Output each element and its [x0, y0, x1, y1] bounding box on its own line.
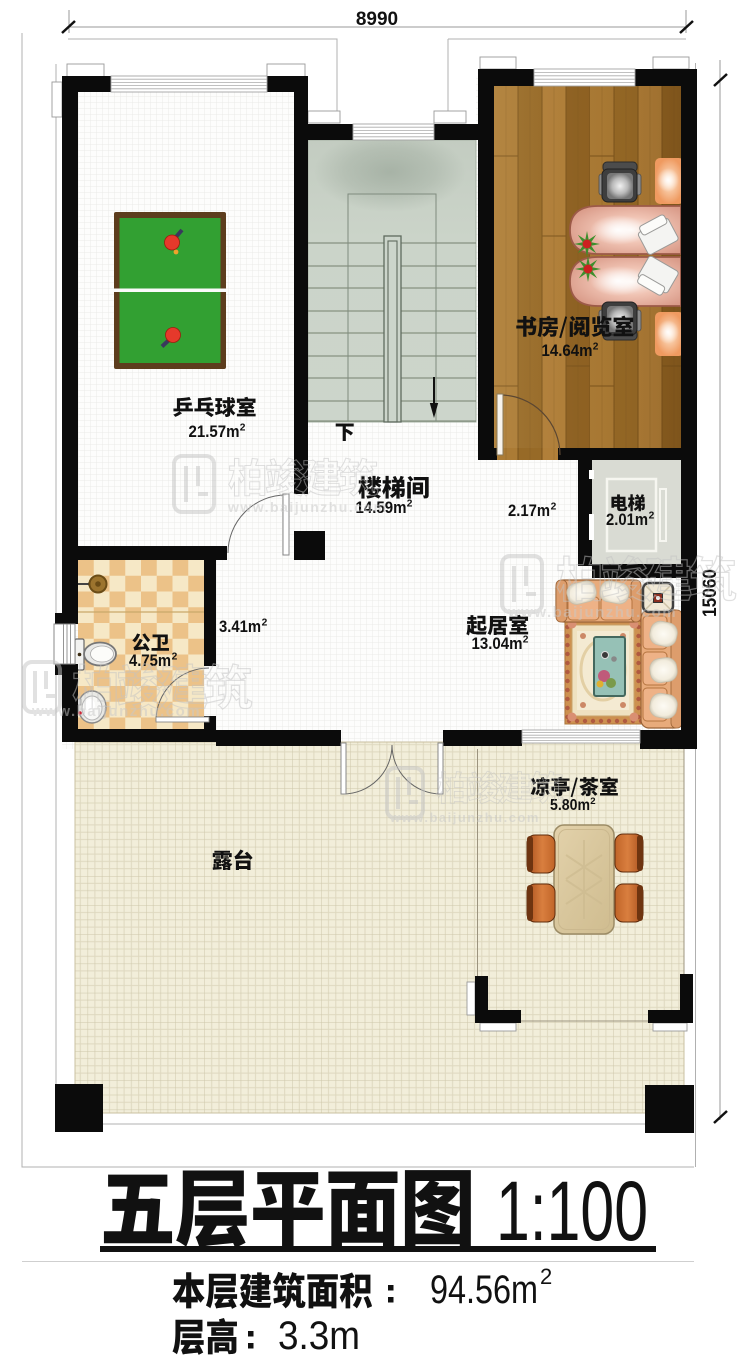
svg-text:94.56m: 94.56m [430, 1268, 538, 1312]
svg-text:2.01m: 2.01m [606, 511, 648, 529]
svg-text:3.3m: 3.3m [278, 1314, 360, 1358]
svg-text:3.41m: 3.41m [219, 618, 261, 636]
svg-text:14.64m: 14.64m [542, 342, 593, 360]
svg-text:2: 2 [551, 502, 557, 513]
svg-text:21.57m: 21.57m [189, 423, 240, 441]
svg-text:2: 2 [540, 1264, 552, 1289]
svg-text:www.baijunzhu.com: www.baijunzhu.com [507, 604, 677, 621]
svg-text:www.baijunzhu.com: www.baijunzhu.com [227, 499, 388, 515]
svg-text:www.baijunzhu.com: www.baijunzhu.com [31, 703, 201, 720]
svg-text:2: 2 [593, 342, 599, 353]
svg-text:2: 2 [649, 511, 655, 522]
svg-text:2: 2 [407, 499, 413, 510]
svg-text:5.80m: 5.80m [550, 797, 590, 814]
svg-text:www.baijunzhu.com: www.baijunzhu.com [389, 810, 540, 825]
svg-text:2: 2 [523, 635, 529, 646]
svg-text:2: 2 [590, 796, 595, 807]
svg-text:2: 2 [240, 423, 246, 434]
svg-text:1:100: 1:100 [496, 1164, 648, 1258]
svg-text:13.04m: 13.04m [472, 635, 523, 653]
svg-text:2.17m: 2.17m [508, 502, 550, 520]
svg-text:2: 2 [262, 618, 268, 629]
svg-text:8990: 8990 [356, 9, 398, 30]
svg-text:2: 2 [172, 652, 178, 663]
